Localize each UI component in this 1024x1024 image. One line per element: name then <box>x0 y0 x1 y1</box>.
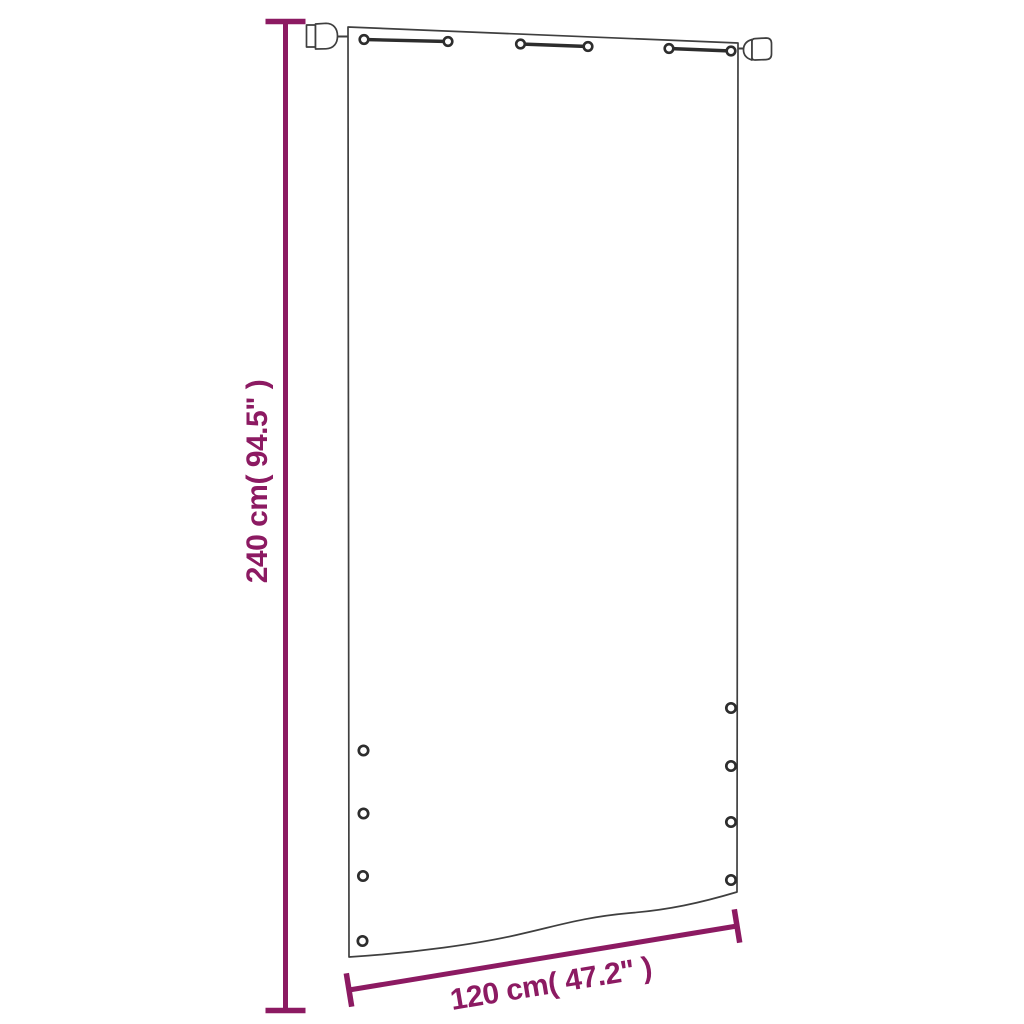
panel-outline <box>348 27 738 957</box>
height-dimension-label: 240 cm( 94.5" ) <box>241 380 274 584</box>
cap-plate <box>752 38 772 60</box>
cord-eyelet-icon <box>360 35 369 44</box>
grommet-icon <box>726 817 735 826</box>
curtain-panel <box>348 27 738 957</box>
grommet-icon <box>358 871 367 880</box>
grommet-icon <box>726 761 735 770</box>
dimension-diagram: 240 cm( 94.5" ) 120 cm( 47.2" ) <box>0 0 1024 1024</box>
cap-body <box>316 23 338 49</box>
rod-end-cap-left <box>307 23 349 49</box>
grommet-icon <box>726 703 735 712</box>
cord-eyelet-icon <box>584 42 593 51</box>
cord-eyelet-icon <box>727 47 736 56</box>
cap-body <box>744 40 753 61</box>
grommet-icon <box>359 746 368 755</box>
height-dimension: 240 cm( 94.5" ) <box>241 22 306 1011</box>
grommet-icon <box>359 809 368 818</box>
cap-plate <box>307 25 316 47</box>
cord-line <box>364 40 448 42</box>
dimension-tick-left <box>346 973 351 1006</box>
cord-eyelet-icon <box>665 44 674 53</box>
product-image: 240 cm( 94.5" ) 120 cm( 47.2" ) <box>0 0 1024 1024</box>
cord-eyelet-icon <box>516 40 525 49</box>
width-dimension-label: 120 cm( 47.2" ) <box>448 951 654 1017</box>
rod-end-cap-right <box>738 38 772 60</box>
grommet-icon <box>358 936 367 945</box>
cord-eyelet-icon <box>444 37 453 46</box>
dimension-tick-right <box>734 909 739 942</box>
grommet-icon <box>726 875 735 884</box>
